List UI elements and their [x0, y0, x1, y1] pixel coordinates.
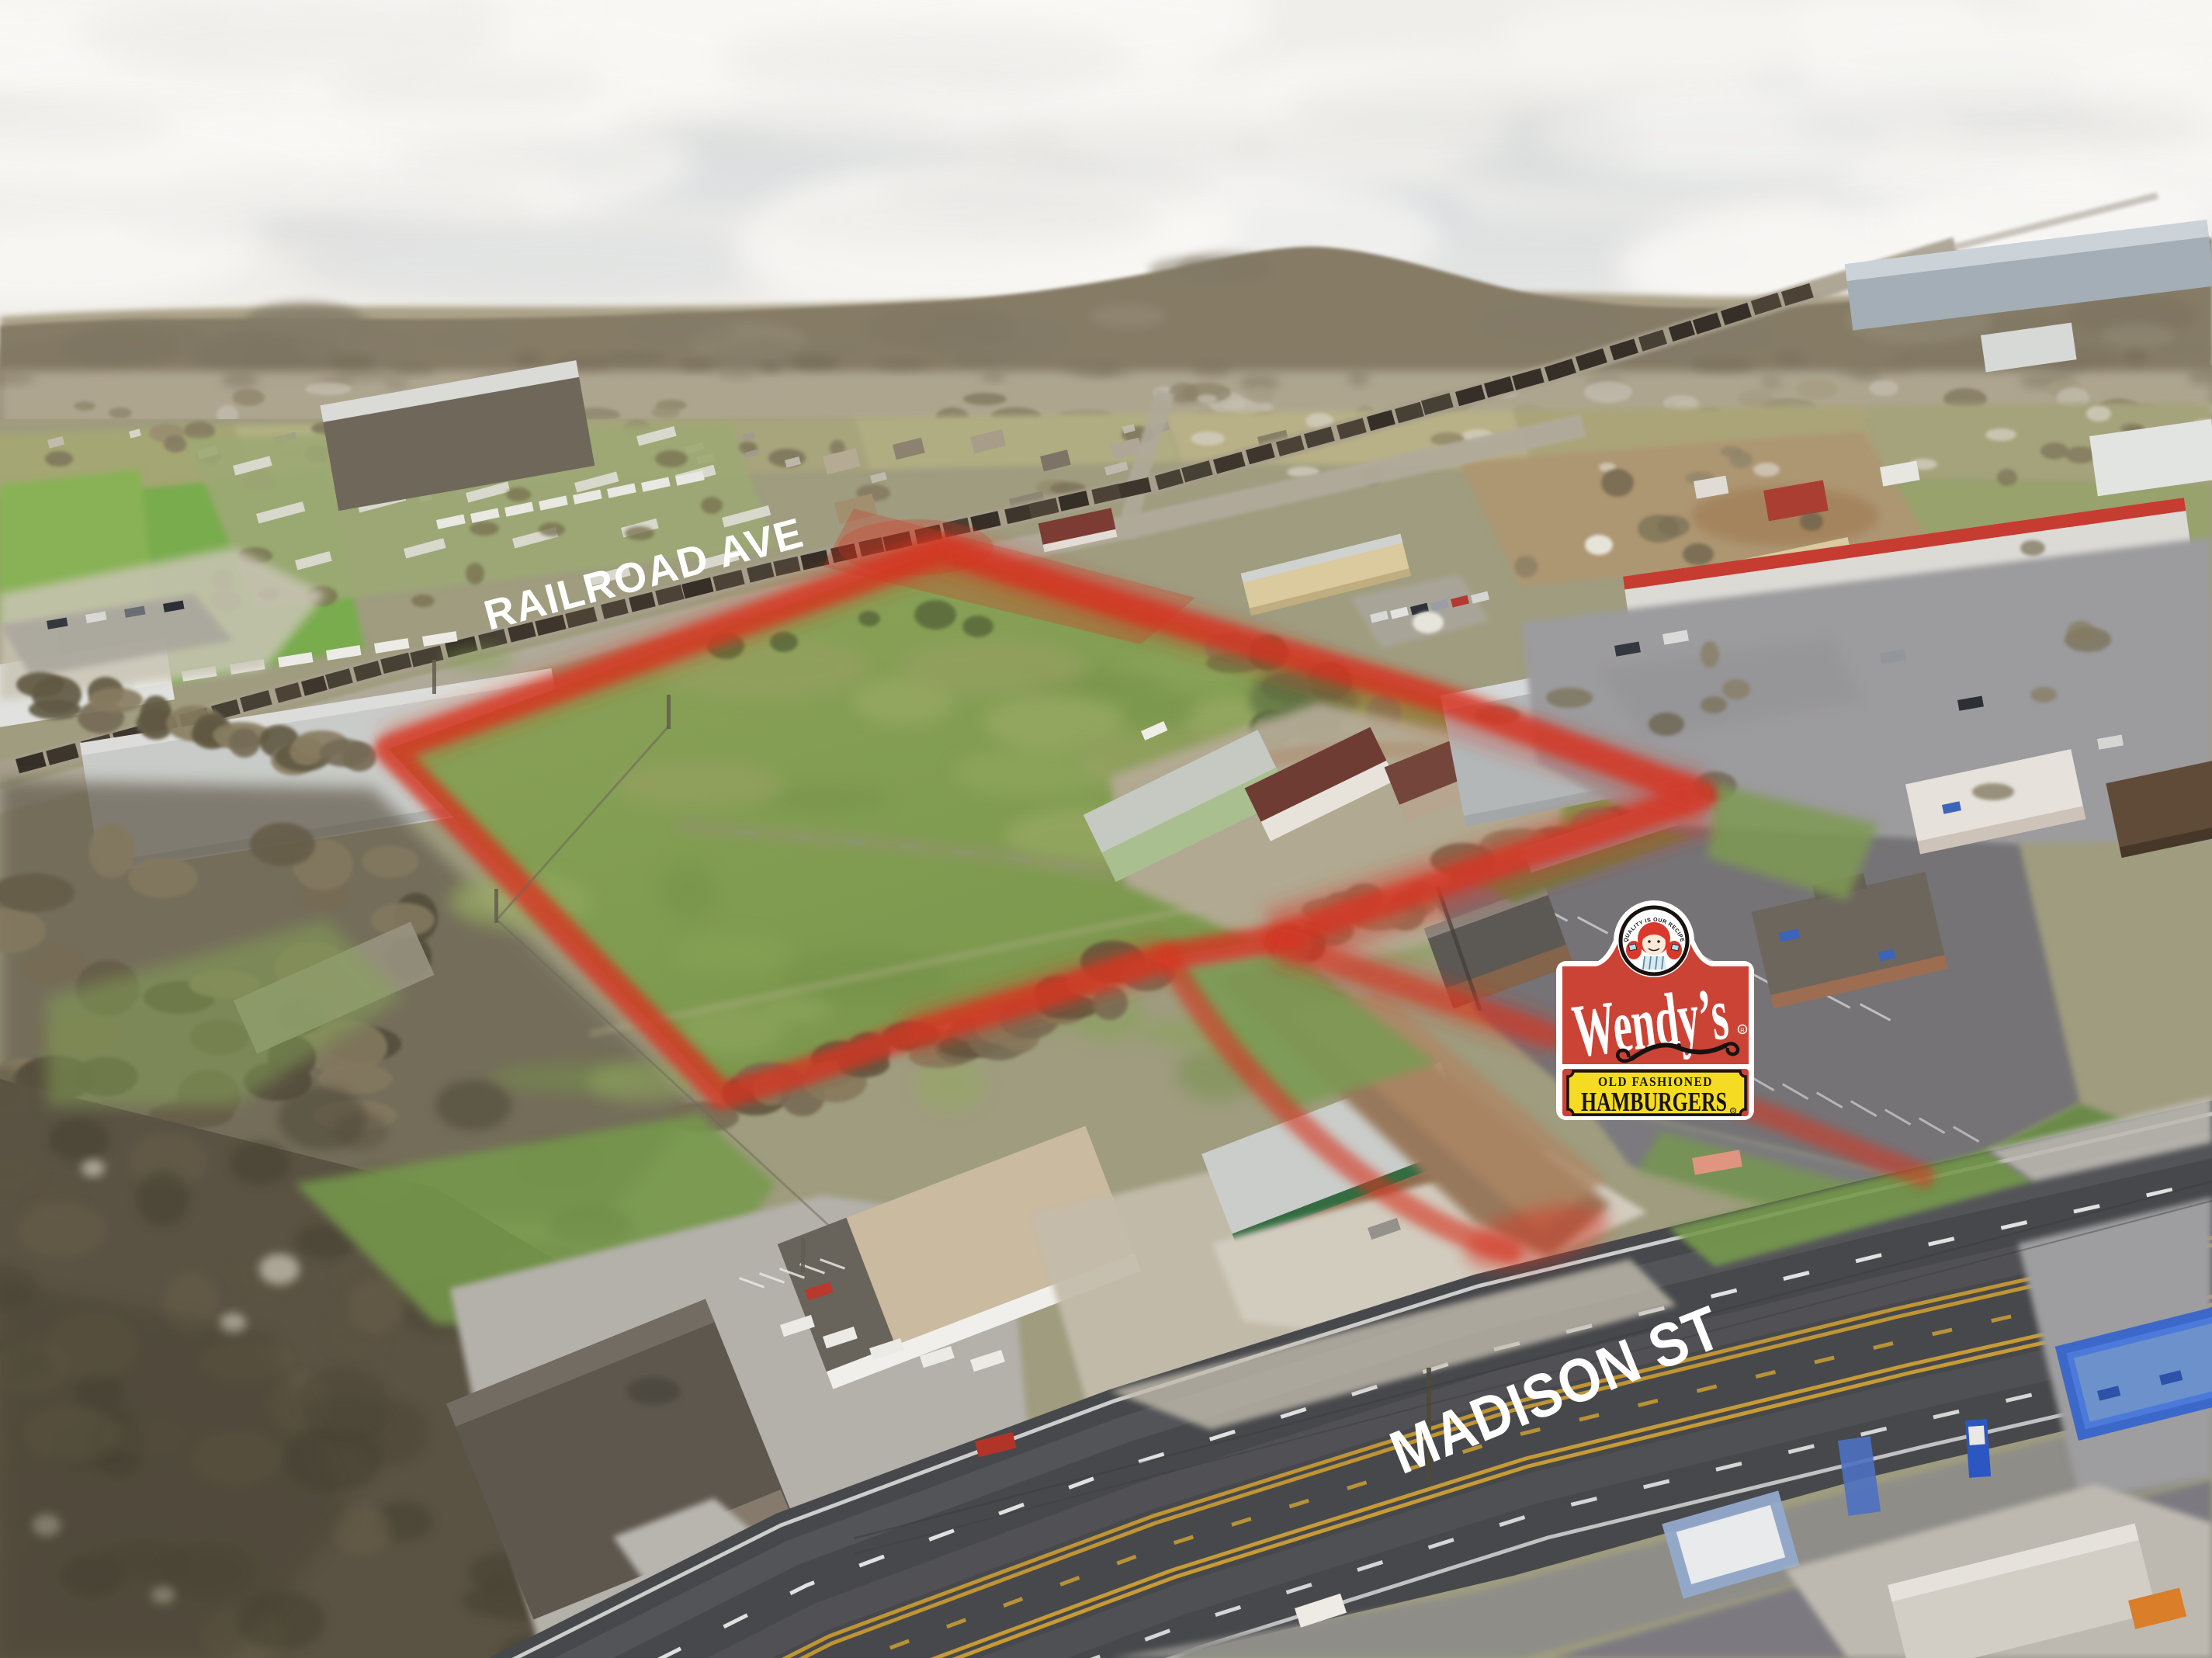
svg-text:HAMBURGERS: HAMBURGERS — [1581, 1087, 1727, 1117]
svg-text:R: R — [1732, 1110, 1735, 1115]
svg-text:R: R — [1740, 1027, 1745, 1034]
